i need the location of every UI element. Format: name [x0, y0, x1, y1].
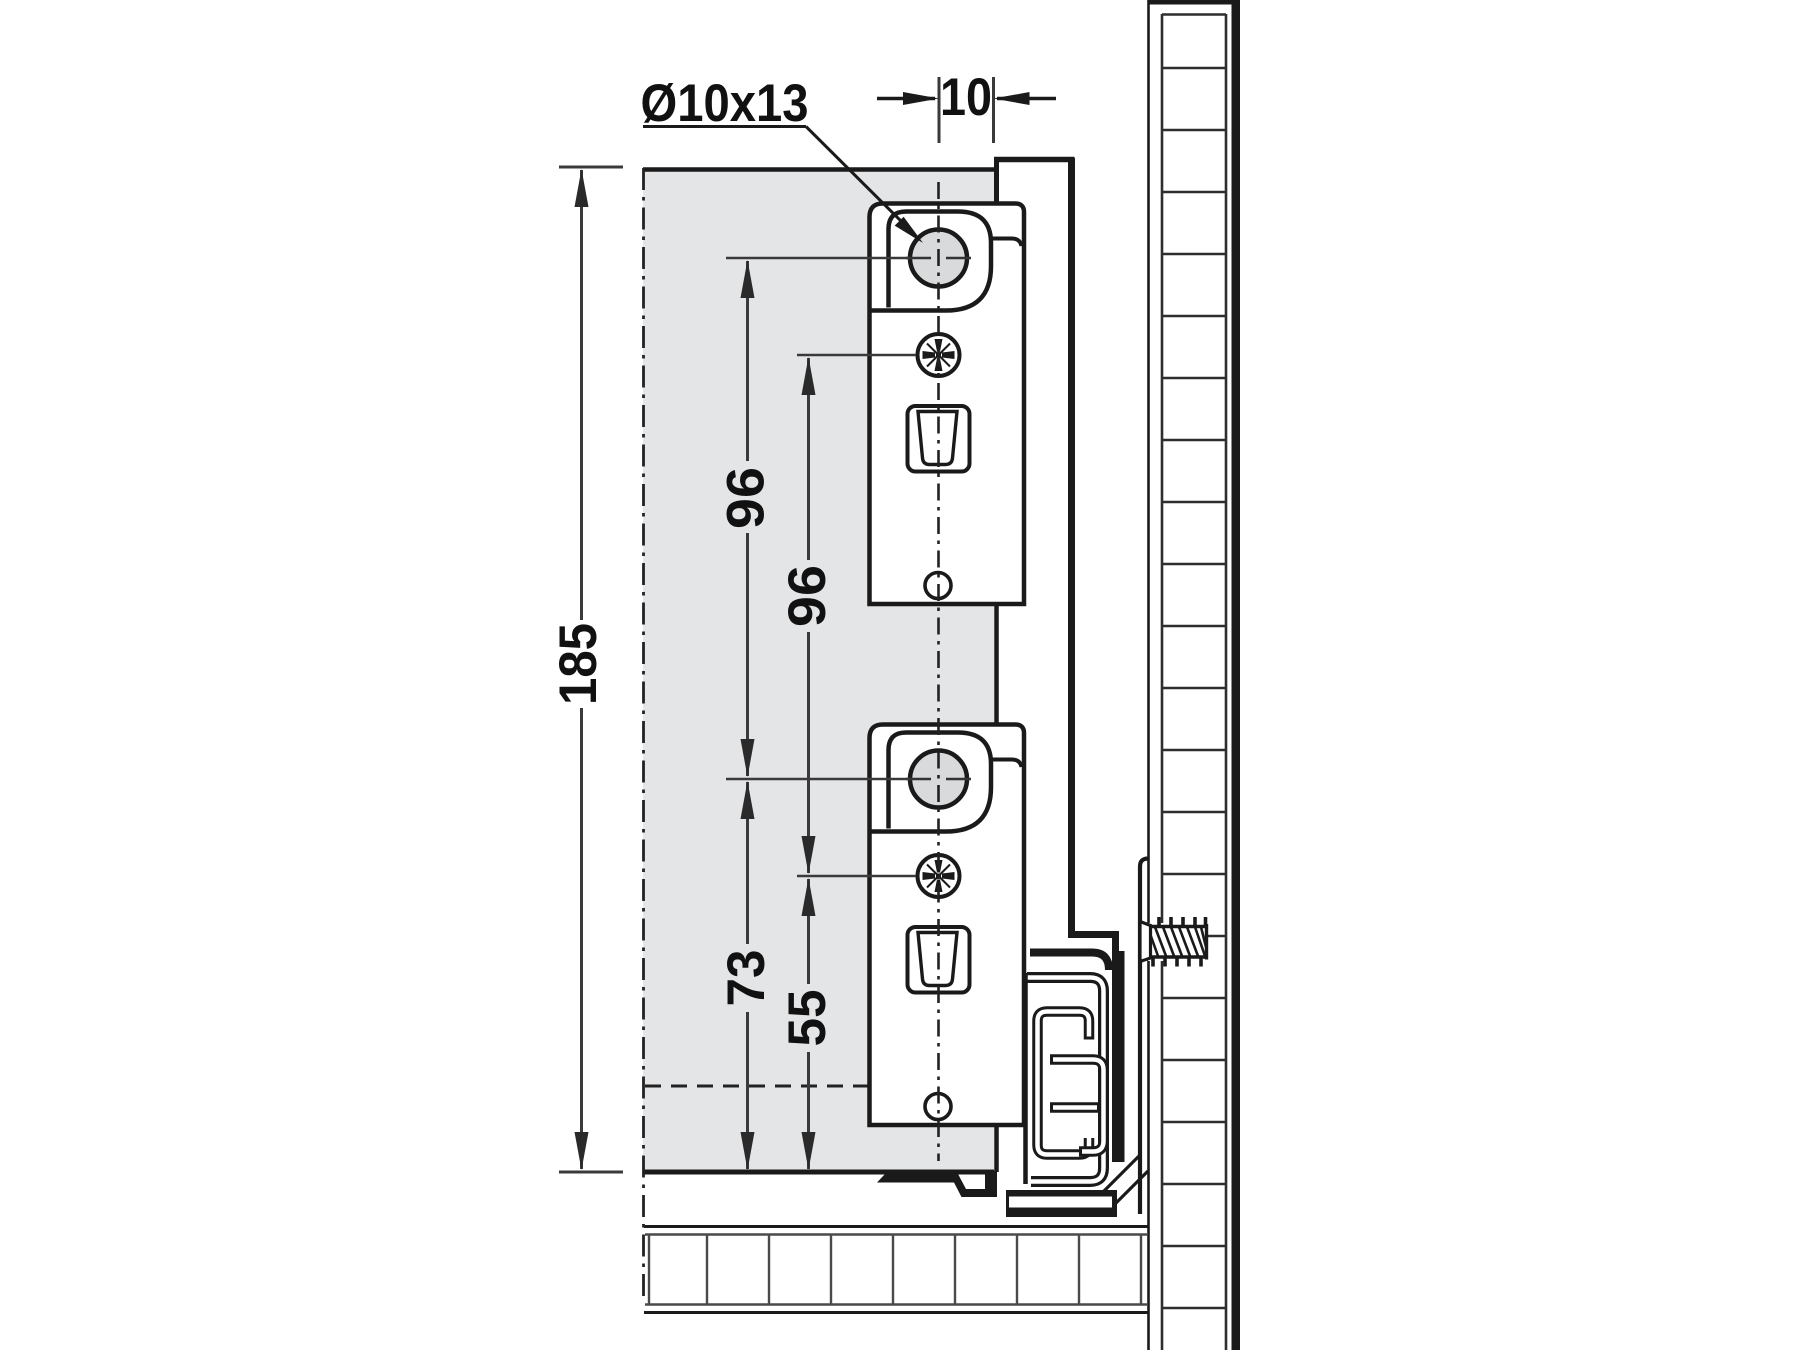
svg-text:10: 10 [940, 68, 992, 127]
svg-text:96: 96 [717, 467, 776, 529]
svg-text:185: 185 [549, 623, 608, 705]
svg-text:55: 55 [778, 990, 837, 1047]
svg-text:96: 96 [778, 565, 837, 627]
svg-text:73: 73 [717, 950, 776, 1007]
svg-text:Ø10x13: Ø10x13 [641, 74, 809, 133]
